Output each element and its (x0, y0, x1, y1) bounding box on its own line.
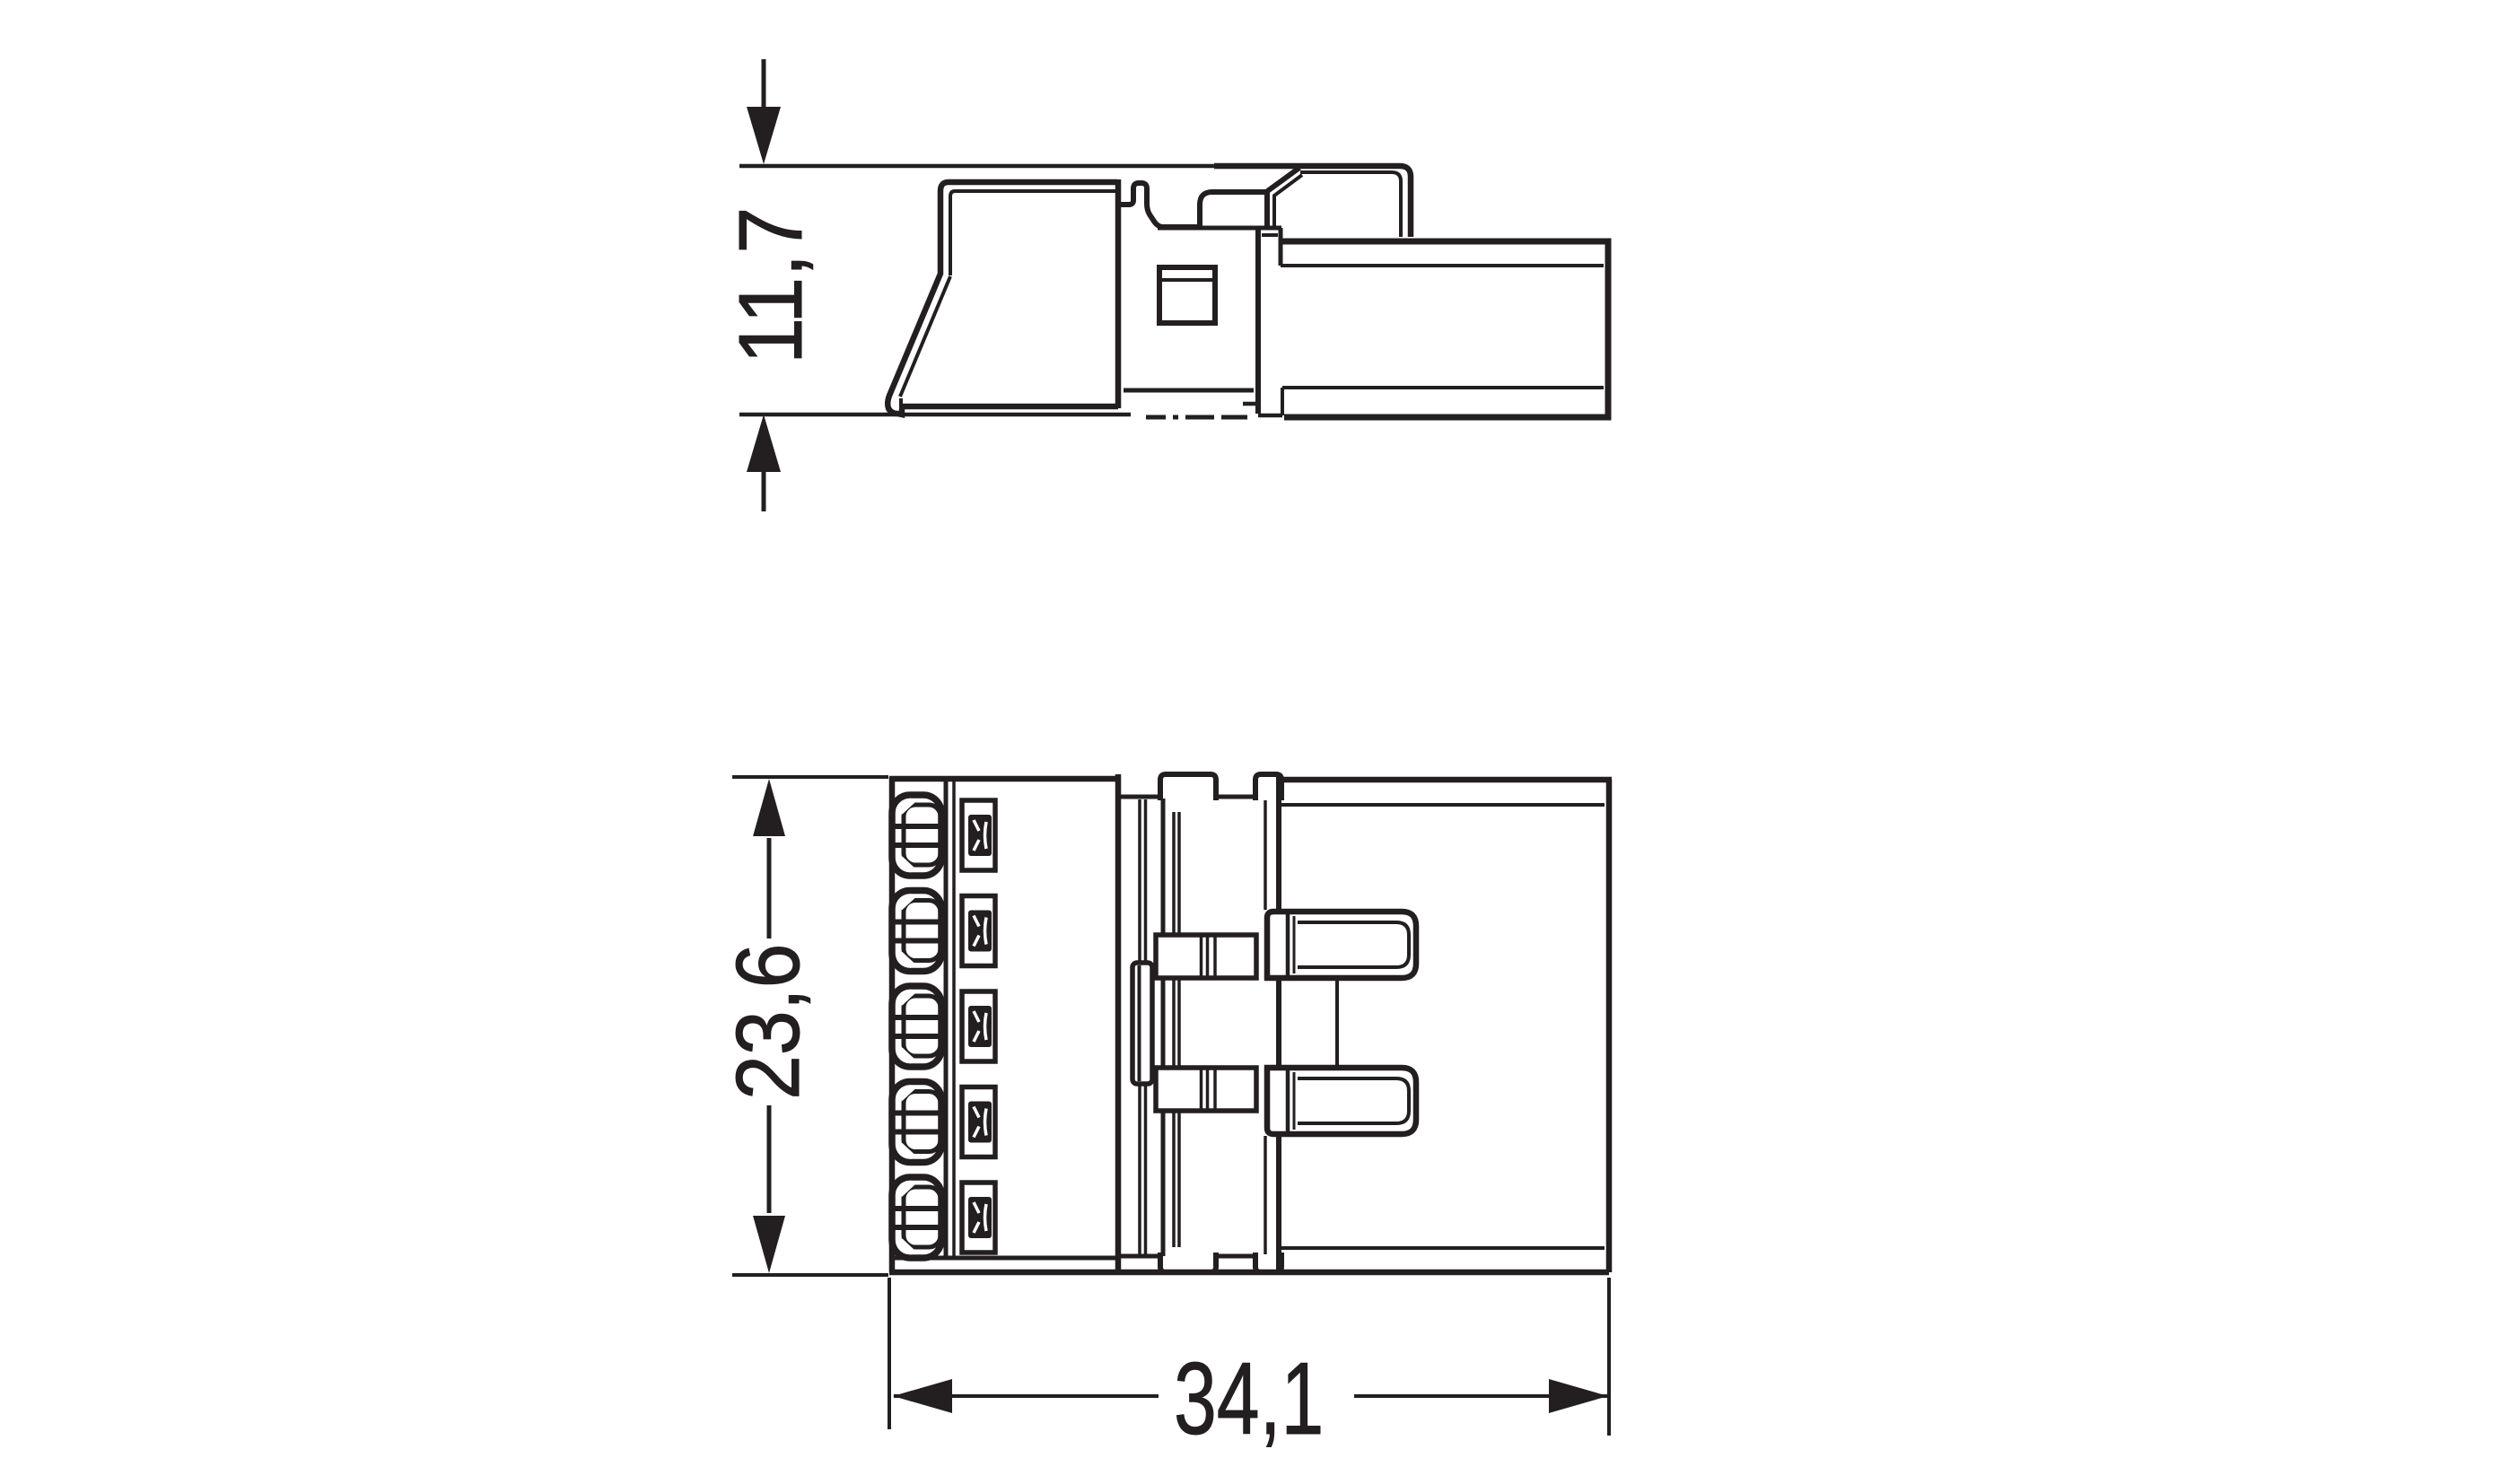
svg-text:23,6: 23,6 (719, 943, 819, 1100)
svg-text:34,1: 34,1 (1174, 1342, 1324, 1455)
svg-text:11,7: 11,7 (720, 207, 820, 364)
